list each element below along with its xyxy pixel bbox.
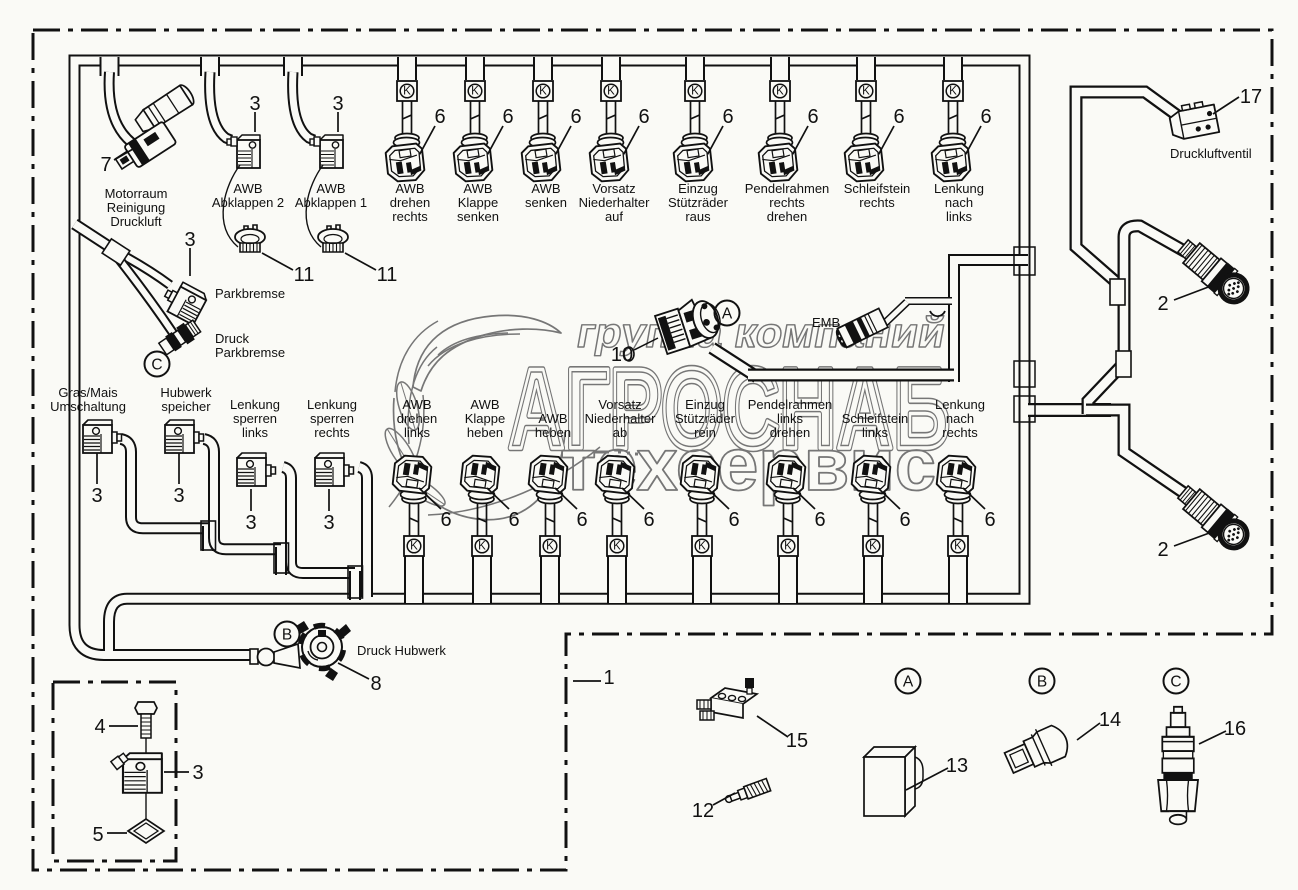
svg-text:6: 6 xyxy=(722,106,733,128)
svg-text:11: 11 xyxy=(294,264,315,286)
svg-text:4: 4 xyxy=(94,716,105,738)
svg-text:Lenkung: Lenkung xyxy=(935,397,985,412)
svg-text:Druckluft: Druckluft xyxy=(110,214,162,229)
svg-text:A: A xyxy=(903,674,914,691)
svg-text:6: 6 xyxy=(440,509,451,531)
svg-text:Druck Hubwerk: Druck Hubwerk xyxy=(357,643,446,658)
svg-text:K: K xyxy=(607,86,615,98)
svg-text:Motorraum: Motorraum xyxy=(105,186,168,201)
svg-text:rechts: rechts xyxy=(392,209,428,224)
svg-text:8: 8 xyxy=(370,673,381,695)
svg-text:K: K xyxy=(471,86,479,98)
svg-text:Abklappen 1: Abklappen 1 xyxy=(295,195,367,210)
svg-text:Schleifstein: Schleifstein xyxy=(842,411,908,426)
svg-text:AWB: AWB xyxy=(395,181,424,196)
svg-text:6: 6 xyxy=(893,106,904,128)
svg-text:6: 6 xyxy=(984,509,995,531)
svg-text:Einzug: Einzug xyxy=(685,397,725,412)
svg-text:AWB: AWB xyxy=(402,397,431,412)
svg-text:Parkbremse: Parkbremse xyxy=(215,345,285,360)
svg-text:links: links xyxy=(946,209,973,224)
svg-text:Reinigung: Reinigung xyxy=(107,200,166,215)
svg-text:Lenkung: Lenkung xyxy=(934,181,984,196)
svg-text:nach: nach xyxy=(946,411,974,426)
svg-text:AWB: AWB xyxy=(233,181,262,196)
svg-text:K: K xyxy=(784,541,792,553)
svg-text:K: K xyxy=(954,541,962,553)
svg-text:speicher: speicher xyxy=(161,399,211,414)
svg-text:Abklappen 2: Abklappen 2 xyxy=(212,195,284,210)
svg-text:Pendelrahmen: Pendelrahmen xyxy=(748,397,833,412)
svg-text:Umschaltung: Umschaltung xyxy=(50,399,126,414)
svg-text:K: K xyxy=(691,86,699,98)
svg-text:senken: senken xyxy=(457,209,499,224)
svg-text:K: K xyxy=(403,86,411,98)
svg-text:B: B xyxy=(1037,674,1047,691)
svg-text:Lenkung: Lenkung xyxy=(230,397,280,412)
svg-text:Stützräder: Stützräder xyxy=(675,411,736,426)
svg-text:drehen: drehen xyxy=(767,209,807,224)
svg-text:Hubwerk: Hubwerk xyxy=(160,385,212,400)
svg-text:6: 6 xyxy=(814,509,825,531)
svg-text:K: K xyxy=(546,541,554,553)
svg-text:C: C xyxy=(151,357,162,374)
svg-text:Klappe: Klappe xyxy=(465,411,505,426)
svg-text:11: 11 xyxy=(377,264,398,286)
svg-text:3: 3 xyxy=(173,485,184,507)
svg-text:K: K xyxy=(862,86,870,98)
svg-text:5: 5 xyxy=(92,824,103,846)
svg-text:6: 6 xyxy=(980,106,991,128)
svg-text:rechts: rechts xyxy=(314,425,350,440)
svg-text:6: 6 xyxy=(728,509,739,531)
svg-text:K: K xyxy=(539,86,547,98)
svg-text:K: K xyxy=(776,86,784,98)
svg-text:3: 3 xyxy=(249,93,260,115)
svg-text:links: links xyxy=(777,411,804,426)
svg-text:Stützräder: Stützräder xyxy=(668,195,729,210)
svg-text:AWB: AWB xyxy=(531,181,560,196)
svg-text:Gras/Mais: Gras/Mais xyxy=(58,385,118,400)
svg-text:AWB: AWB xyxy=(316,181,345,196)
svg-text:Vorsatz: Vorsatz xyxy=(592,181,635,196)
svg-text:Lenkung: Lenkung xyxy=(307,397,357,412)
svg-text:K: K xyxy=(698,541,706,553)
svg-text:6: 6 xyxy=(508,509,519,531)
svg-text:17: 17 xyxy=(1240,86,1262,108)
svg-text:3: 3 xyxy=(332,93,343,115)
svg-text:Druckluftventil: Druckluftventil xyxy=(1170,146,1252,161)
svg-text:AWB: AWB xyxy=(538,411,567,426)
svg-text:links: links xyxy=(242,425,269,440)
svg-text:AWB: AWB xyxy=(463,181,492,196)
svg-text:drehen: drehen xyxy=(390,195,430,210)
svg-text:raus: raus xyxy=(685,209,711,224)
svg-text:3: 3 xyxy=(323,512,334,534)
svg-text:16: 16 xyxy=(1224,718,1246,740)
svg-text:rechts: rechts xyxy=(769,195,805,210)
svg-text:K: K xyxy=(478,541,486,553)
svg-text:senken: senken xyxy=(525,195,567,210)
svg-text:Parkbremse: Parkbremse xyxy=(215,286,285,301)
svg-text:3: 3 xyxy=(245,512,256,534)
svg-text:14: 14 xyxy=(1099,709,1121,731)
svg-text:Niederhalter: Niederhalter xyxy=(585,411,656,426)
svg-text:drehen: drehen xyxy=(397,411,437,426)
svg-text:6: 6 xyxy=(899,509,910,531)
svg-text:rechts: rechts xyxy=(859,195,895,210)
svg-text:rein: rein xyxy=(694,425,716,440)
svg-text:K: K xyxy=(869,541,877,553)
svg-text:sperren: sperren xyxy=(310,411,354,426)
svg-text:Schleifstein: Schleifstein xyxy=(844,181,910,196)
svg-text:K: K xyxy=(410,541,418,553)
svg-text:2: 2 xyxy=(1157,539,1168,561)
svg-text:6: 6 xyxy=(643,509,654,531)
svg-text:6: 6 xyxy=(570,106,581,128)
svg-text:links: links xyxy=(862,425,889,440)
svg-text:Niederhalter: Niederhalter xyxy=(579,195,650,210)
svg-text:Vorsatz: Vorsatz xyxy=(598,397,641,412)
svg-text:heben: heben xyxy=(535,425,571,440)
svg-text:15: 15 xyxy=(786,730,808,752)
svg-text:3: 3 xyxy=(91,485,102,507)
svg-text:2: 2 xyxy=(1157,293,1168,315)
svg-text:K: K xyxy=(949,86,957,98)
svg-text:12: 12 xyxy=(692,800,714,822)
svg-text:C: C xyxy=(1170,674,1181,691)
svg-text:13: 13 xyxy=(946,755,968,777)
svg-text:EMB: EMB xyxy=(812,315,840,330)
svg-text:heben: heben xyxy=(467,425,503,440)
svg-text:sperren: sperren xyxy=(233,411,277,426)
svg-text:B: B xyxy=(282,627,292,644)
svg-text:1: 1 xyxy=(603,667,614,689)
svg-text:Druck: Druck xyxy=(215,331,249,346)
svg-text:links: links xyxy=(404,425,431,440)
svg-text:rechts: rechts xyxy=(942,425,978,440)
svg-text:Einzug: Einzug xyxy=(678,181,718,196)
svg-text:auf: auf xyxy=(605,209,623,224)
svg-text:3: 3 xyxy=(192,762,203,784)
svg-text:K: K xyxy=(613,541,621,553)
svg-text:6: 6 xyxy=(576,509,587,531)
svg-text:6: 6 xyxy=(807,106,818,128)
svg-text:10: 10 xyxy=(611,344,633,366)
svg-text:Pendelrahmen: Pendelrahmen xyxy=(745,181,830,196)
svg-text:ab: ab xyxy=(613,425,627,440)
svg-text:drehen: drehen xyxy=(770,425,810,440)
svg-text:3: 3 xyxy=(184,229,195,251)
svg-text:Klappe: Klappe xyxy=(458,195,498,210)
svg-text:6: 6 xyxy=(502,106,513,128)
svg-text:AWB: AWB xyxy=(470,397,499,412)
svg-text:nach: nach xyxy=(945,195,973,210)
svg-text:7: 7 xyxy=(100,154,111,176)
svg-text:6: 6 xyxy=(434,106,445,128)
svg-text:6: 6 xyxy=(638,106,649,128)
svg-text:A: A xyxy=(722,306,733,323)
